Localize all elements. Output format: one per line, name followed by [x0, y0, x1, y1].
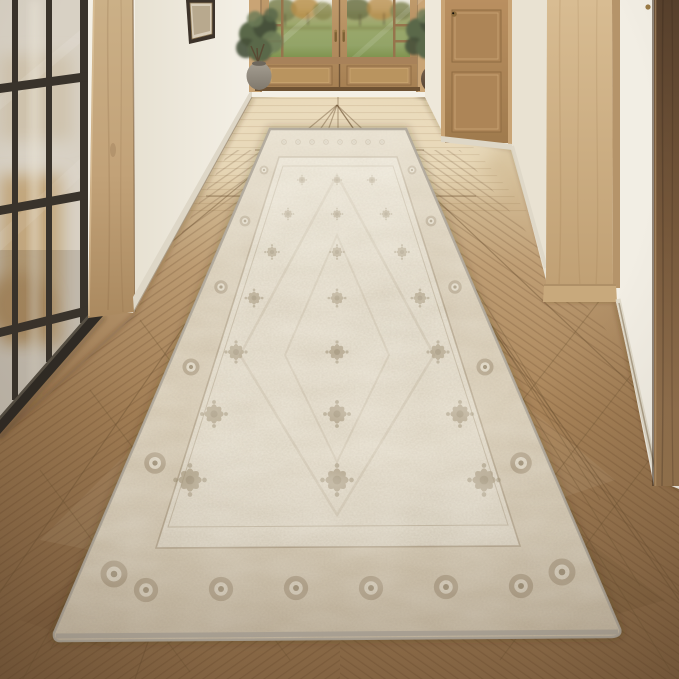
scene-canvas — [0, 0, 679, 679]
vignette — [0, 0, 679, 679]
hallway-scene — [0, 0, 679, 679]
